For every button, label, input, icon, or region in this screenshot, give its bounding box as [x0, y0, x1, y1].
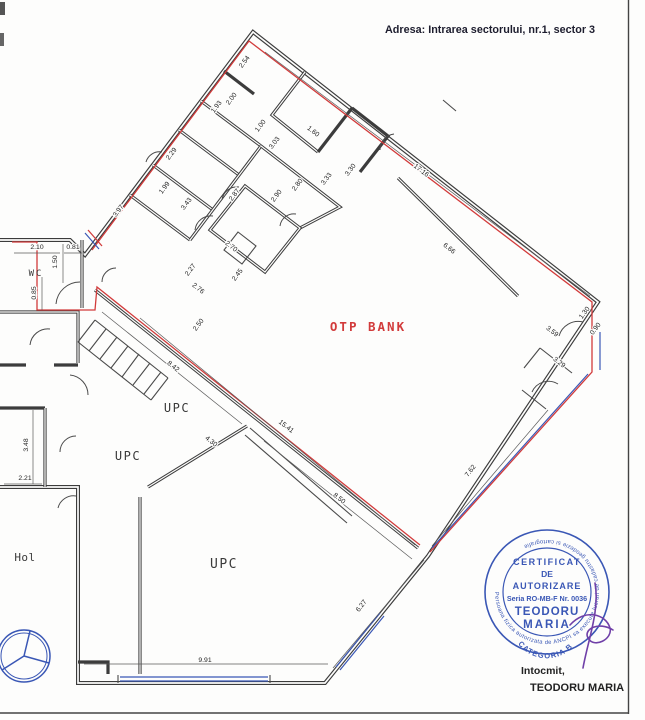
dim-label: 1.93: [210, 100, 224, 115]
dim-label: 0.90: [589, 322, 603, 337]
dim-label: 2.27: [184, 263, 198, 278]
footer-block: Intocmit, TEODORU MARIA: [521, 665, 624, 694]
staircase: [78, 320, 168, 400]
dimension-lines: [4, 52, 590, 668]
dim-label: 6.27: [355, 599, 369, 614]
room-labels: OTP BANK UPC UPC UPC Hol WC: [14, 269, 406, 572]
dim-label: 2.00: [225, 92, 239, 107]
stamp-name-maria: MARIA: [523, 619, 571, 631]
stamp-line-certificat: CERTIFICAT: [513, 557, 581, 567]
dim-label: 1.60: [306, 125, 321, 139]
stamp-line-de: DE: [541, 569, 553, 579]
dim-label: 3.43: [180, 197, 194, 212]
prepared-by-name: TEODORU MARIA: [530, 682, 624, 694]
dim-label: 1.00: [254, 119, 268, 134]
address-line: Adresa: Intrarea sectorului, nr.1, secto…: [385, 24, 595, 36]
stamp-line-seria: Seria RO-MB-F Nr. 0036: [507, 594, 587, 603]
outer-walls: [0, 32, 598, 683]
stamp-name-teodoru: TEODORU: [515, 606, 580, 618]
prepared-by-label: Intocmit,: [521, 665, 565, 677]
stamp-line-autorizare: AUTORIZARE: [513, 581, 582, 591]
dim-label: 3.30: [344, 163, 358, 178]
floor-plan: 3.97 1.99 2.29 1.93 2.00 2.54 17.16 1.00…: [0, 0, 645, 720]
room-label-wc: WC: [29, 269, 44, 279]
dim-label: 1.50: [52, 255, 59, 268]
dim-label: 2.76: [191, 282, 206, 296]
dim-label: 2.45: [231, 268, 245, 283]
dim-label: 0.81: [66, 244, 79, 251]
dim-label: 7.62: [464, 464, 478, 479]
dim-label: 2.10: [30, 244, 43, 251]
dim-label: 2.90: [270, 189, 284, 204]
dim-label: 2.54: [238, 55, 252, 70]
dim-label: 0.85: [31, 286, 38, 299]
dim-label: 9.91: [198, 657, 211, 664]
red-boundary: [12, 41, 592, 552]
room-label-upc-1: UPC: [164, 401, 190, 415]
dim-label: 6.66: [442, 242, 457, 256]
room-label-hol: Hol: [14, 551, 35, 564]
dim-label: 3.03: [268, 136, 282, 151]
room-label-upc-2: UPC: [115, 449, 141, 463]
dim-label: 2.21: [18, 475, 31, 482]
scanned-floor-plan-page: 3.97 1.99 2.29 1.93 2.00 2.54 17.16 1.00…: [0, 0, 645, 720]
dim-label: 3.59: [545, 325, 560, 339]
room-label-otp-bank: OTP BANK: [330, 319, 406, 334]
dim-label: 17.16: [412, 163, 430, 179]
dim-label: 8.50: [332, 492, 347, 506]
window-strips: [118, 613, 384, 683]
dim-label: 1.99: [158, 181, 172, 196]
dim-label: 3.33: [320, 172, 334, 187]
dim-label: 2.50: [192, 318, 206, 333]
room-label-upc-3: UPC: [210, 557, 238, 572]
dim-label: 3.48: [23, 438, 30, 451]
dim-label: 8.42: [166, 360, 181, 374]
north-symbol: [0, 630, 50, 682]
